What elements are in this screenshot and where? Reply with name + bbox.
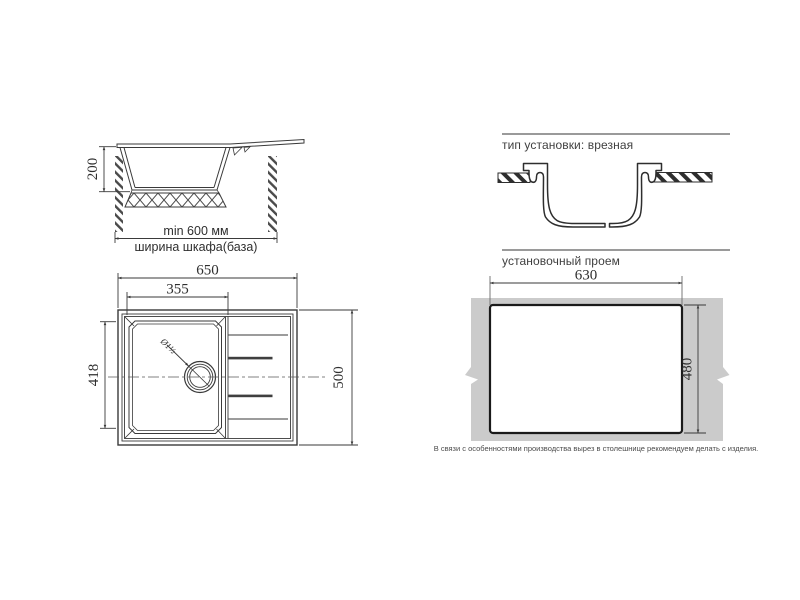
install-section-divider	[502, 133, 730, 135]
drainboard-supports	[233, 147, 250, 155]
sink-outer-rect	[118, 310, 297, 445]
dim-355-label: 355	[166, 282, 189, 298]
cabinet-left-wall-hatch	[115, 156, 123, 232]
cutout-opening	[490, 305, 682, 433]
bowl-bottom	[132, 188, 217, 191]
dim-500-label: 500	[331, 366, 347, 389]
dim-418	[100, 322, 116, 429]
dim-650-label: 650	[196, 263, 219, 279]
sink-rim-profile	[117, 140, 304, 148]
dim-200-label: 200	[85, 158, 101, 181]
countertop-right-hatch	[652, 173, 712, 183]
production-note: В связи с особенностями производства выр…	[430, 444, 762, 453]
install-section-title: тип установки: врезная	[502, 138, 633, 152]
cabinet-right-wall-hatch	[268, 156, 277, 232]
cutout-section-divider	[502, 249, 730, 251]
dim-500	[299, 310, 358, 445]
sink-profile-left	[524, 164, 606, 228]
side-view-drawing: 200 min 600 мм ширина шкафа(база)	[80, 130, 325, 260]
cutout-drawing: 630 480	[430, 262, 760, 457]
drainboard-rib-3	[229, 395, 273, 398]
bowl-walls	[120, 148, 230, 191]
bowl-base-crosshatch	[125, 193, 226, 207]
dim-630-label: 630	[575, 268, 598, 284]
sink-profile-right	[610, 164, 662, 228]
dim-418-label: 418	[86, 364, 102, 387]
install-type-drawing	[495, 155, 730, 240]
dim-480-label: 480	[680, 358, 696, 381]
drainboard-rib-2	[229, 357, 273, 360]
countertop-left-hatch	[498, 173, 530, 183]
top-view-drawing: Ø1½ 650 355 418 500	[80, 258, 380, 458]
cabinet-width-caption: ширина шкафа(база)	[135, 240, 258, 254]
dim-min-600-label: min 600 мм	[163, 224, 228, 238]
